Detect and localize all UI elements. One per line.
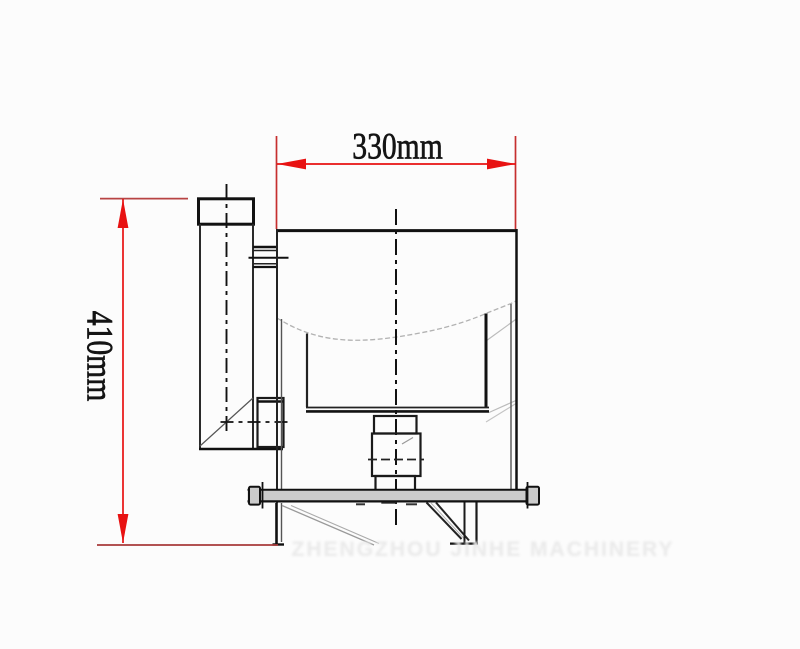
svg-text:330mm: 330mm (352, 126, 442, 167)
svg-text:ZHENGZHOU JINHE MACHINERY: ZHENGZHOU JINHE MACHINERY (292, 538, 675, 561)
svg-text:410mm: 410mm (79, 311, 120, 401)
